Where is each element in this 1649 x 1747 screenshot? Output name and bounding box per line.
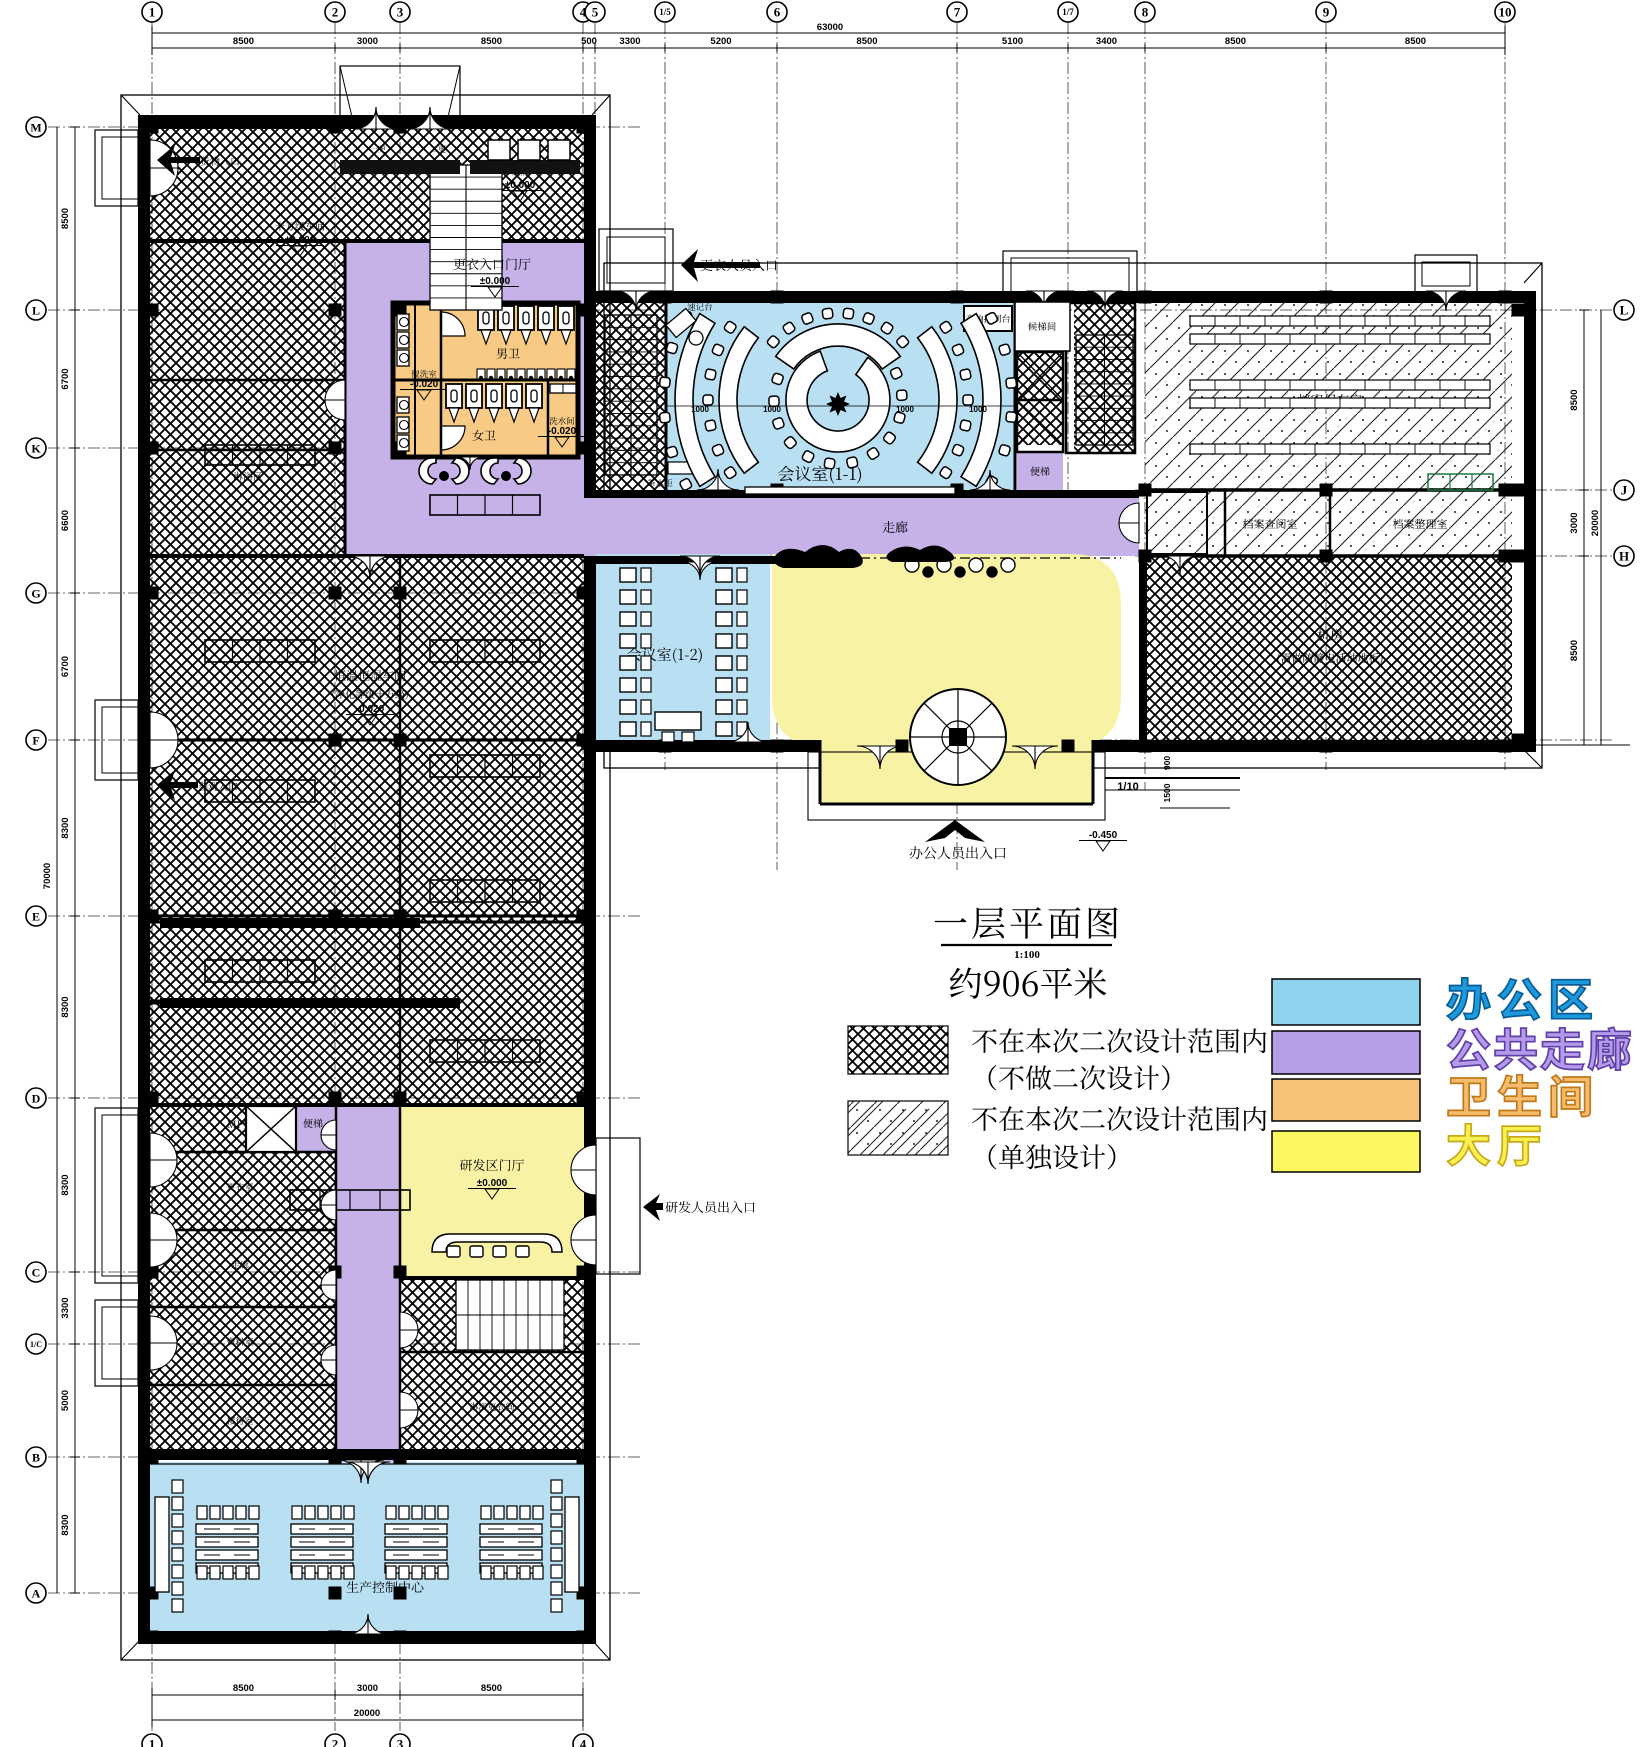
- svg-text:-0.020: -0.020: [410, 379, 439, 390]
- svg-text:1: 1: [149, 1737, 156, 1747]
- svg-text:±0.000: ±0.000: [505, 180, 536, 191]
- svg-text:1:100: 1:100: [1014, 949, 1040, 961]
- svg-text:1/7: 1/7: [1062, 7, 1074, 17]
- svg-text:-0.450: -0.450: [1089, 830, 1118, 841]
- svg-text:A: A: [32, 1586, 41, 1600]
- svg-text:6700: 6700: [60, 368, 71, 389]
- svg-text:7: 7: [954, 5, 961, 20]
- svg-text:3400: 3400: [1096, 36, 1117, 47]
- svg-text:H: H: [1619, 549, 1629, 564]
- svg-text:3300: 3300: [60, 1297, 71, 1318]
- svg-text:8500: 8500: [60, 208, 71, 229]
- svg-text:8500: 8500: [856, 36, 877, 47]
- svg-text:8300: 8300: [60, 996, 71, 1017]
- svg-text:-0.020: -0.020: [548, 426, 577, 437]
- svg-text:3300: 3300: [619, 36, 640, 47]
- svg-text:±0.000: ±0.000: [480, 276, 511, 287]
- svg-text:1/5: 1/5: [659, 7, 671, 17]
- svg-text:8500: 8500: [1569, 389, 1580, 410]
- svg-text:±0.000: ±0.000: [477, 1178, 508, 1189]
- svg-text:L: L: [1620, 303, 1629, 318]
- svg-text:3: 3: [397, 5, 404, 20]
- svg-text:20000: 20000: [354, 1708, 380, 1719]
- svg-text:8500: 8500: [1569, 640, 1580, 661]
- svg-text:8300: 8300: [60, 1514, 71, 1535]
- svg-text:6: 6: [774, 5, 781, 20]
- svg-text:3: 3: [397, 1737, 404, 1747]
- svg-text:J: J: [1621, 483, 1628, 498]
- svg-text:8: 8: [1142, 5, 1149, 20]
- svg-text:3000: 3000: [357, 1683, 378, 1694]
- svg-text:5000: 5000: [60, 1390, 71, 1411]
- svg-text:8500: 8500: [481, 36, 502, 47]
- svg-text:1: 1: [149, 5, 156, 20]
- svg-text:2: 2: [332, 5, 339, 20]
- svg-text:B: B: [32, 1450, 40, 1464]
- svg-text:8500: 8500: [1405, 36, 1426, 47]
- svg-text:8500: 8500: [233, 36, 254, 47]
- svg-text:20000: 20000: [1590, 510, 1601, 536]
- svg-text:F: F: [32, 733, 39, 747]
- svg-text:63000: 63000: [817, 22, 843, 33]
- svg-text:L: L: [32, 303, 40, 317]
- svg-text:K: K: [31, 441, 41, 455]
- svg-text:6600: 6600: [60, 510, 71, 531]
- svg-text:70000: 70000: [42, 863, 53, 889]
- svg-text:8300: 8300: [60, 817, 71, 838]
- svg-text:8500: 8500: [481, 1683, 502, 1694]
- svg-text:D: D: [32, 1091, 41, 1105]
- svg-text:1/C: 1/C: [30, 1340, 42, 1349]
- svg-text:-0.020: -0.020: [356, 704, 385, 715]
- svg-text:E: E: [32, 909, 40, 923]
- svg-text:M: M: [30, 120, 41, 134]
- svg-text:10: 10: [1499, 5, 1512, 20]
- svg-text:4: 4: [580, 1737, 587, 1747]
- svg-text:6700: 6700: [60, 656, 71, 677]
- svg-text:±0.000: ±0.000: [285, 235, 316, 246]
- svg-text:5100: 5100: [1002, 36, 1023, 47]
- svg-text:G: G: [31, 586, 40, 600]
- svg-text:5200: 5200: [710, 36, 731, 47]
- svg-text:1/10: 1/10: [1117, 781, 1138, 793]
- svg-text:8500: 8500: [233, 1683, 254, 1694]
- svg-text:2: 2: [332, 1737, 339, 1747]
- svg-text:3000: 3000: [1569, 512, 1580, 533]
- svg-text:1500: 1500: [1162, 783, 1172, 802]
- svg-text:5: 5: [592, 5, 599, 20]
- svg-text:3000: 3000: [357, 36, 378, 47]
- svg-text:8300: 8300: [60, 1174, 71, 1195]
- svg-text:C: C: [32, 1265, 41, 1279]
- svg-text:9: 9: [1323, 5, 1330, 20]
- svg-text:8500: 8500: [1225, 36, 1246, 47]
